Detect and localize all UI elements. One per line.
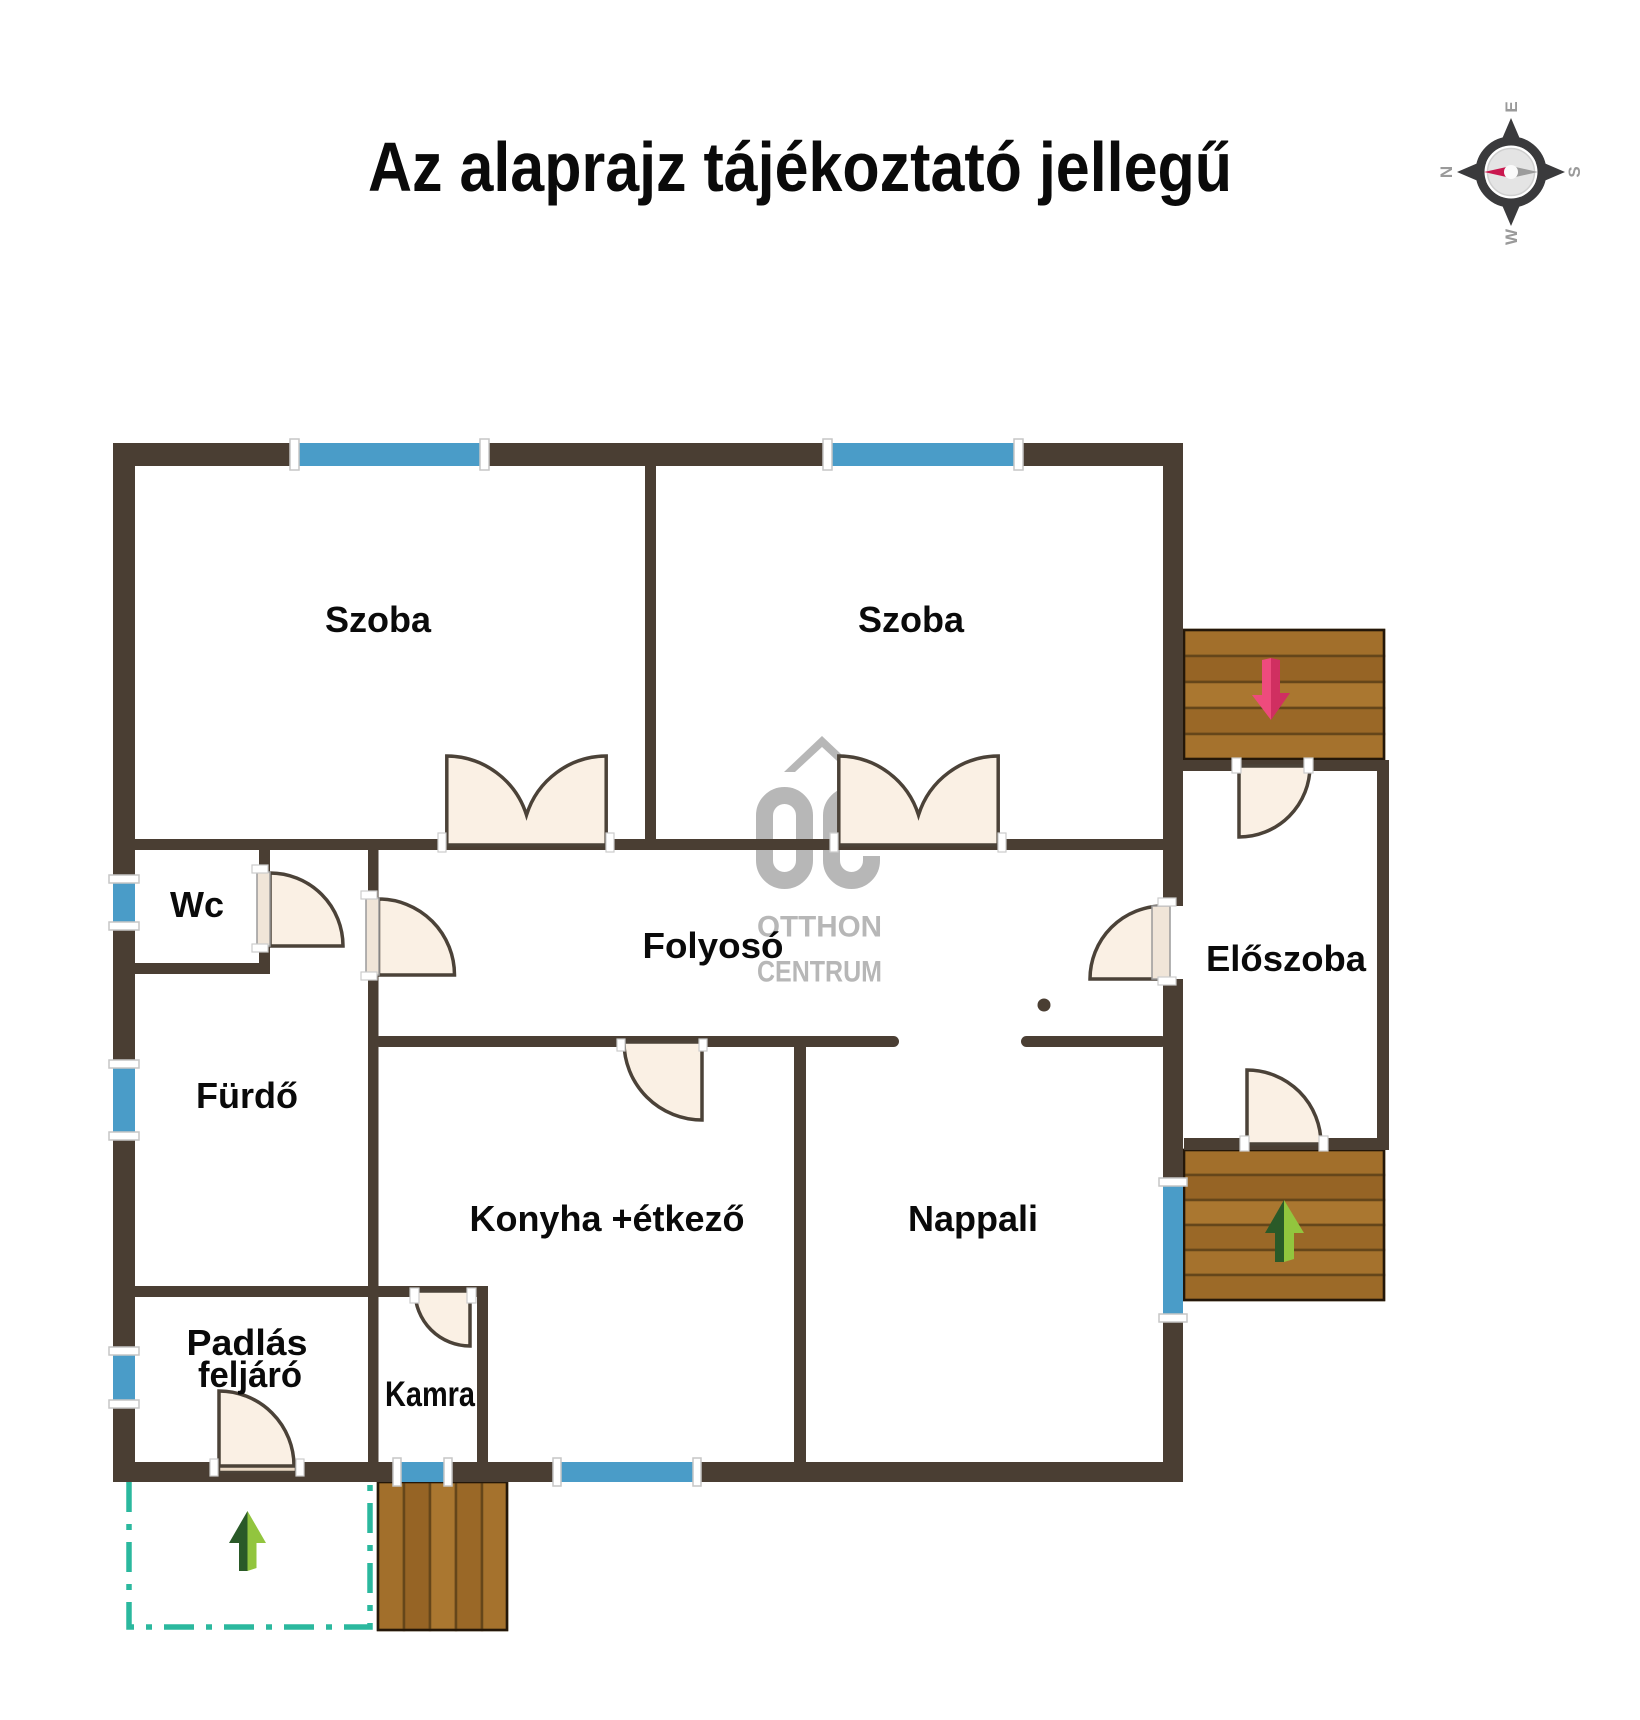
svg-text:Fürdő: Fürdő [196,1075,298,1116]
svg-text:W: W [1502,228,1521,245]
svg-text:Szoba: Szoba [858,599,965,640]
svg-text:S: S [1565,166,1584,177]
svg-text:E: E [1502,101,1521,112]
svg-text:feljáró: feljáró [198,1354,302,1395]
svg-text:Az alaprajz tájékoztató jelleg: Az alaprajz tájékoztató jellegű [368,128,1232,206]
svg-text:Konyha +étkező: Konyha +étkező [469,1198,744,1239]
svg-text:Wc: Wc [170,884,224,925]
svg-text:Előszoba: Előszoba [1206,938,1367,979]
svg-text:Folyosó: Folyosó [643,925,784,966]
svg-text:Kamra: Kamra [385,1375,475,1414]
svg-text:N: N [1437,166,1456,178]
svg-text:Szoba: Szoba [325,599,432,640]
svg-text:Nappali: Nappali [908,1198,1038,1239]
